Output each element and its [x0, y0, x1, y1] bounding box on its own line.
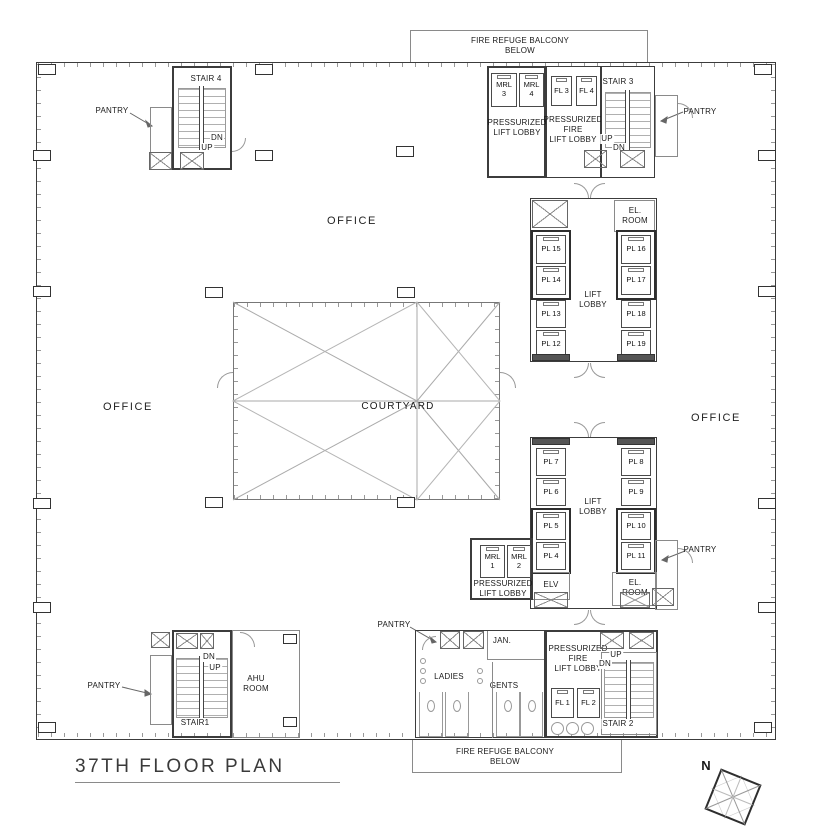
column: [283, 634, 297, 644]
pantry-room-bottom-left: [150, 655, 172, 725]
fire-refuge-balcony-top-label: FIRE REFUGE BALCONY BELOW: [471, 36, 569, 56]
stair1-rail: [199, 656, 204, 720]
shaft-xbox: [584, 150, 607, 168]
basin-fixture: [477, 668, 483, 674]
column: [758, 602, 776, 613]
column: [33, 498, 51, 509]
stair4-rail: [199, 86, 204, 150]
lift-mrl4: MRL 4: [519, 73, 544, 107]
lift-lobby-upper-label: LIFT LOBBY: [579, 290, 607, 310]
ladies-label: LADIES: [434, 672, 464, 682]
jan-partition: [487, 659, 544, 660]
column: [255, 64, 273, 75]
wc-fixture: [453, 700, 461, 712]
column: [397, 287, 415, 298]
curtain-wall-ticks-right: [771, 64, 775, 738]
scallop: [566, 722, 579, 735]
pantry-label-top-left: PANTRY: [96, 106, 129, 116]
office-label-top: OFFICE: [327, 215, 377, 229]
stair2-rail: [626, 660, 631, 720]
courtyard-ticks-right: [495, 303, 499, 499]
lift-pl11: PL 11: [621, 542, 651, 570]
toilet-stall: [520, 692, 543, 737]
pantry-label-bottom-left: PANTRY: [88, 681, 121, 691]
shaft-xbox: [620, 592, 650, 608]
courtyard-ticks-bottom: [234, 495, 499, 499]
column: [754, 722, 772, 733]
column: [33, 150, 51, 161]
lift-lobby-lower-label: LIFT LOBBY: [579, 497, 607, 517]
toilet-stall: [419, 692, 443, 737]
courtyard-ticks-left: [234, 303, 238, 499]
elv-label: ELV: [543, 580, 558, 590]
stair1-label: STAIR1: [180, 718, 211, 728]
gents-label: GENTS: [490, 681, 519, 691]
fire-refuge-balcony-bottom-label: FIRE REFUGE BALCONY BELOW: [456, 747, 554, 767]
north-label: N: [701, 758, 711, 774]
pressurized-lift-lobby-mrl-label: PRESSURIZED LIFT LOBBY: [473, 579, 532, 599]
shaft-xbox: [151, 632, 170, 648]
office-label-left: OFFICE: [103, 401, 153, 415]
lift-pl13: PL 13: [536, 300, 566, 328]
lift-fl3: FL 3: [551, 76, 572, 106]
drawing-title: 37TH FLOOR PLAN: [75, 756, 340, 783]
pressurized-fire-lift-lobby-top-label: PRESSURIZED FIRE LIFT LOBBY: [543, 115, 602, 145]
pantry-label-bottom-mid: PANTRY: [378, 620, 411, 630]
stair2-label: STAIR 2: [601, 719, 634, 729]
lift-pl16: PL 16: [621, 235, 651, 264]
jan-label: JAN.: [493, 636, 511, 646]
column: [38, 722, 56, 733]
stair4-dn-label: DN: [210, 133, 224, 143]
wc-fixture: [427, 700, 435, 712]
pressurized-lift-lobby-top-label: PRESSURIZED LIFT LOBBY: [487, 118, 546, 138]
basin-fixture: [420, 668, 426, 674]
wc-fixture: [528, 700, 536, 712]
stair1-dn-label: DN: [202, 652, 216, 662]
shaft-xbox: [532, 200, 568, 228]
stair3-rail: [625, 90, 630, 150]
sill: [617, 354, 655, 361]
curtain-wall-ticks-top: [38, 63, 774, 67]
shaft-xbox: [600, 632, 624, 649]
lift-mrl2: MRL 2: [507, 545, 531, 578]
lift-pl17: PL 17: [621, 266, 651, 295]
floor-plan-canvas: FIRE REFUGE BALCONY BELOW FIRE REFUGE BA…: [0, 0, 814, 839]
toilet-stall: [496, 692, 520, 737]
column: [283, 717, 297, 727]
column: [38, 64, 56, 75]
shaft-xbox: [534, 592, 568, 608]
basin-fixture: [477, 678, 483, 684]
stair4-label: STAIR 4: [190, 74, 221, 84]
sill: [532, 354, 570, 361]
toilet-partition: [492, 662, 493, 738]
shaft-xbox: [149, 152, 172, 170]
lift-pl18: PL 18: [621, 300, 651, 328]
lift-pl8: PL 8: [621, 448, 651, 476]
pantry-room-top-right: [655, 95, 678, 157]
lift-pl15: PL 15: [536, 235, 566, 264]
column: [33, 602, 51, 613]
courtyard-ticks-top: [234, 303, 499, 307]
scallop: [581, 722, 594, 735]
column: [754, 64, 772, 75]
column: [397, 497, 415, 508]
lift-pl7: PL 7: [536, 448, 566, 476]
stair2-dn-label: DN: [598, 659, 612, 669]
ahu-room-label: AHU ROOM: [243, 674, 269, 694]
lift-pl6: PL 6: [536, 478, 566, 506]
lift-fl2: FL 2: [577, 688, 600, 718]
basin-fixture: [420, 658, 426, 664]
shaft-xbox: [652, 588, 674, 606]
column: [758, 150, 776, 161]
el-room-upper-label: EL. ROOM: [622, 206, 648, 226]
sill: [532, 438, 570, 445]
lift-pl5: PL 5: [536, 512, 566, 540]
shaft-xbox: [440, 631, 460, 649]
column: [33, 286, 51, 297]
lift-pl9: PL 9: [621, 478, 651, 506]
column: [205, 497, 223, 508]
basin-fixture: [420, 678, 426, 684]
column: [255, 150, 273, 161]
lift-mrl1: MRL 1: [480, 545, 505, 578]
sill: [617, 438, 655, 445]
lift-mrl3: MRL 3: [491, 73, 517, 107]
courtyard-label: COURTYARD: [361, 401, 434, 414]
wc-fixture: [504, 700, 512, 712]
shaft-xbox: [176, 633, 198, 649]
lift-fl4: FL 4: [576, 76, 597, 106]
shaft-xbox: [620, 150, 645, 168]
curtain-wall-ticks-bottom: [38, 733, 774, 737]
stair1-up-label: UP: [208, 663, 222, 673]
pantry-label-mid-right: PANTRY: [684, 545, 717, 555]
toilet-stall: [445, 692, 469, 737]
shaft-xbox: [629, 632, 654, 649]
lift-pl4: PL 4: [536, 542, 566, 570]
shaft-xbox: [463, 631, 484, 649]
north-arrow: [703, 767, 762, 826]
pantry-label-top-right: PANTRY: [684, 107, 717, 117]
jan-partition: [487, 631, 488, 660]
curtain-wall-ticks-left: [37, 64, 41, 738]
scallop: [551, 722, 564, 735]
shaft-xbox: [180, 152, 204, 170]
column: [396, 146, 414, 157]
lift-pl14: PL 14: [536, 266, 566, 295]
office-label-right: OFFICE: [691, 412, 741, 426]
shaft-xbox: [200, 633, 214, 649]
lift-pl10: PL 10: [621, 512, 651, 540]
lift-fl1: FL 1: [551, 688, 574, 718]
column: [758, 498, 776, 509]
column: [758, 286, 776, 297]
stair3-label: STAIR 3: [602, 77, 633, 87]
column: [205, 287, 223, 298]
